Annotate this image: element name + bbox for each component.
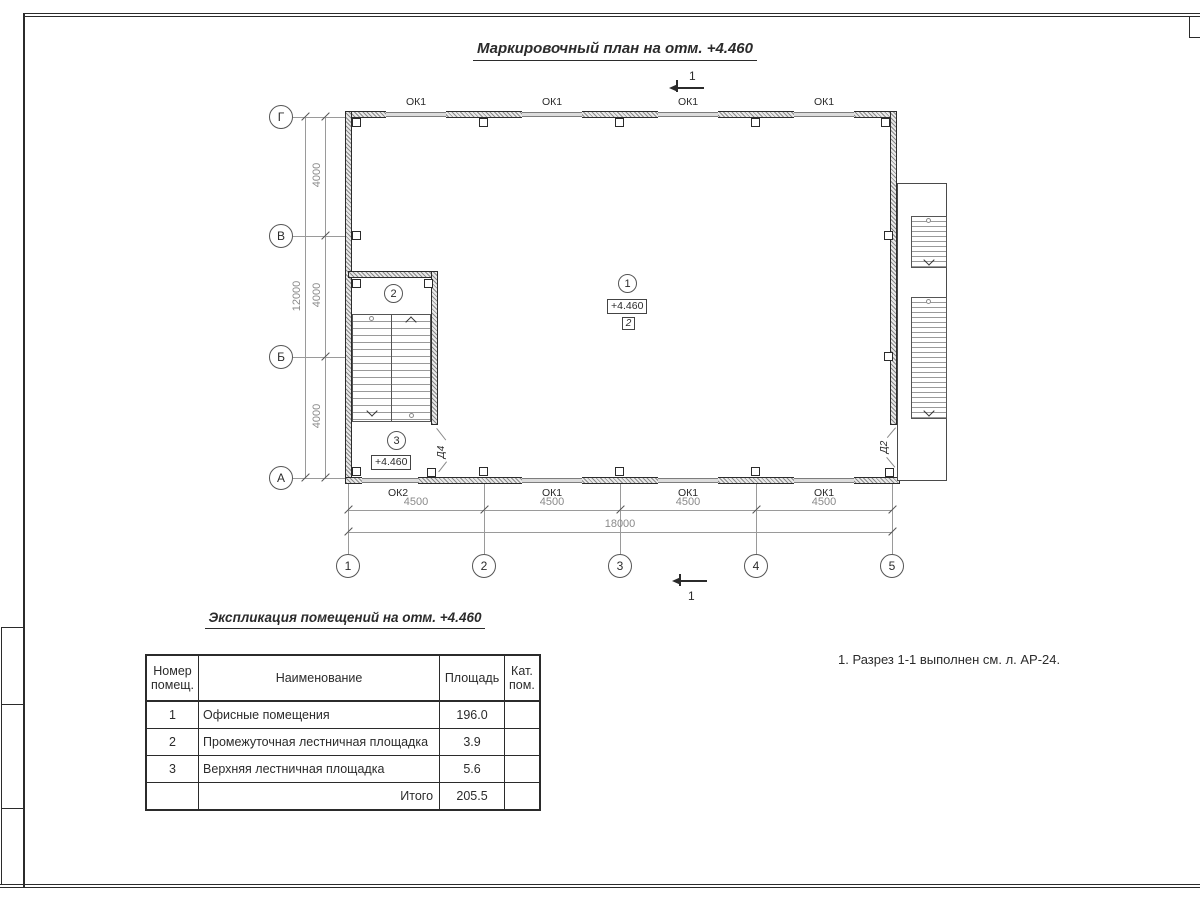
door-mark-d4: Д4 xyxy=(436,441,448,463)
door-leader xyxy=(436,428,446,440)
column-mark xyxy=(881,118,890,127)
column-mark xyxy=(352,279,361,288)
table-row: 1 Офисные помещения 196.0 xyxy=(146,701,540,729)
dim-text-4500: 4500 xyxy=(663,496,713,508)
table-row: 3 Верхняя лестничная площадка 5.6 xyxy=(146,756,540,783)
dim-line-left-total xyxy=(305,117,306,478)
table-row: 2 Промежуточная лестничная площадка 3.9 xyxy=(146,729,540,756)
axis-extension xyxy=(756,484,757,554)
room-area: 196.0 xyxy=(440,701,505,729)
dim-text-4000: 4000 xyxy=(311,275,323,315)
axis-extension xyxy=(293,357,345,358)
plan-title: Маркировочный план на отм. +4.460 xyxy=(430,40,800,61)
door-leader xyxy=(438,461,447,472)
frame-left xyxy=(23,13,25,887)
column-mark xyxy=(479,118,488,127)
door-jamb-mark xyxy=(885,468,894,477)
column-mark xyxy=(424,279,433,288)
stairwell-wall-top xyxy=(348,271,438,278)
schedule-header-category: Кат. пом. xyxy=(505,655,540,701)
frame-bottom-outer xyxy=(0,884,1200,885)
dim-text-4500: 4500 xyxy=(527,496,577,508)
axis-bubble-g: Г xyxy=(269,105,293,129)
window-ok1-top-3 xyxy=(658,111,718,118)
dim-text-12000: 12000 xyxy=(291,276,303,316)
room-category xyxy=(505,729,540,756)
handrail-post xyxy=(926,218,931,223)
total-empty-cell xyxy=(146,783,199,811)
column-mark xyxy=(352,467,361,476)
room-area: 3.9 xyxy=(440,729,505,756)
room-name: Верхняя лестничная площадка xyxy=(199,756,440,783)
room-category xyxy=(505,701,540,729)
column-mark xyxy=(751,467,760,476)
axis-bubble-3: 3 xyxy=(608,554,632,578)
section-arrow-icon xyxy=(672,577,681,585)
handrail-post xyxy=(926,299,931,304)
window-ok2-bottom xyxy=(362,477,418,484)
section-mark-bottom-line xyxy=(679,580,707,582)
column-mark xyxy=(615,467,624,476)
column-mark xyxy=(352,118,361,127)
margin-strip-divider-2 xyxy=(1,704,23,705)
frame-top-outer xyxy=(23,13,1200,14)
finish-mark-square: 2 xyxy=(622,317,635,330)
handrail-post xyxy=(409,413,414,418)
column-mark xyxy=(884,352,893,361)
total-label: Итого xyxy=(199,783,440,811)
margin-strip-divider-3 xyxy=(1,808,23,809)
axis-bubble-v: В xyxy=(269,224,293,248)
room-number: 2 xyxy=(146,729,199,756)
room-mark-3: 3 xyxy=(387,431,406,450)
margin-strip-line xyxy=(1,627,2,885)
margin-strip-divider-1 xyxy=(1,627,23,628)
window-ok1-bottom-2 xyxy=(522,477,582,484)
axis-extension xyxy=(293,478,345,479)
frame-top-inner xyxy=(23,16,1200,17)
schedule-total-row: Итого 205.5 xyxy=(146,783,540,811)
window-ok1-top-2 xyxy=(522,111,582,118)
total-area: 205.5 xyxy=(440,783,505,811)
room-number: 1 xyxy=(146,701,199,729)
window-ok1-bottom-4 xyxy=(794,477,854,484)
axis-bubble-b: Б xyxy=(269,345,293,369)
room-number: 3 xyxy=(146,756,199,783)
room-mark-2: 2 xyxy=(384,284,403,303)
stair-flight-right xyxy=(391,314,431,422)
dim-text-4000: 4000 xyxy=(311,155,323,195)
external-stair-flight-2 xyxy=(911,297,947,419)
dim-text-18000: 18000 xyxy=(595,518,645,530)
axis-extension xyxy=(484,484,485,554)
section-mark-top-line xyxy=(676,87,704,89)
axis-bubble-a: А xyxy=(269,466,293,490)
room-mark-1: 1 xyxy=(618,274,637,293)
stairwell-wall-right xyxy=(431,271,438,425)
column-mark xyxy=(884,231,893,240)
elevation-box-room3: +4.460 xyxy=(371,455,411,470)
frame-bottom-inner xyxy=(0,887,1200,888)
axis-extension xyxy=(892,484,893,554)
dim-line-left-segments xyxy=(325,117,326,478)
schedule-title: Экспликация помещений на отм. +4.460 xyxy=(175,610,515,629)
column-mark xyxy=(352,231,361,240)
window-label: ОК1 xyxy=(530,96,574,108)
dim-text-4500: 4500 xyxy=(391,496,441,508)
total-category-cell xyxy=(505,783,540,811)
axis-bubble-1: 1 xyxy=(336,554,360,578)
section-arrow-icon xyxy=(669,84,678,92)
handrail-post xyxy=(369,316,374,321)
axis-bubble-2: 2 xyxy=(472,554,496,578)
room-name: Офисные помещения xyxy=(199,701,440,729)
window-ok1-top-1 xyxy=(386,111,446,118)
axis-extension xyxy=(348,484,349,554)
schedule-title-text: Экспликация помещений на отм. +4.460 xyxy=(205,610,486,629)
column-mark xyxy=(751,118,760,127)
axis-bubble-4: 4 xyxy=(744,554,768,578)
window-label: ОК1 xyxy=(666,96,710,108)
plan-title-text: Маркировочный план на отм. +4.460 xyxy=(473,40,757,61)
schedule-header-row: Номер помещ. Наименование Площадь Кат. п… xyxy=(146,655,540,701)
door-jamb-mark xyxy=(427,468,436,477)
wall-right xyxy=(890,111,897,425)
room-category xyxy=(505,756,540,783)
room-area: 5.6 xyxy=(440,756,505,783)
axis-extension xyxy=(293,117,345,118)
door-leader xyxy=(886,457,895,468)
window-ok1-top-4 xyxy=(794,111,854,118)
dim-line-bottom-total xyxy=(348,532,892,533)
wall-left xyxy=(345,111,352,484)
drawing-note: 1. Разрез 1-1 выполнен см. л. АР-24. xyxy=(838,652,1060,667)
window-label: ОК1 xyxy=(394,96,438,108)
door-mark-d2: Д2 xyxy=(879,436,891,458)
section-mark-bottom-label: 1 xyxy=(688,589,695,603)
schedule-header-number: Номер помещ. xyxy=(146,655,199,701)
schedule-header-name: Наименование xyxy=(199,655,440,701)
corner-stamp-box xyxy=(1189,16,1200,38)
elevation-box-room1: +4.460 xyxy=(607,299,647,314)
room-name: Промежуточная лестничная площадка xyxy=(199,729,440,756)
window-label: ОК1 xyxy=(802,96,846,108)
section-mark-top-label: 1 xyxy=(689,69,696,83)
schedule-header-area: Площадь xyxy=(440,655,505,701)
dim-text-4000: 4000 xyxy=(311,396,323,436)
window-ok1-bottom-3 xyxy=(658,477,718,484)
column-mark xyxy=(479,467,488,476)
column-mark xyxy=(615,118,624,127)
room-schedule-table: Номер помещ. Наименование Площадь Кат. п… xyxy=(145,654,541,811)
drawing-sheet: Маркировочный план на отм. +4.460 1 ОК1 … xyxy=(0,0,1200,900)
dim-text-4500: 4500 xyxy=(799,496,849,508)
axis-extension xyxy=(293,236,345,237)
axis-bubble-5: 5 xyxy=(880,554,904,578)
